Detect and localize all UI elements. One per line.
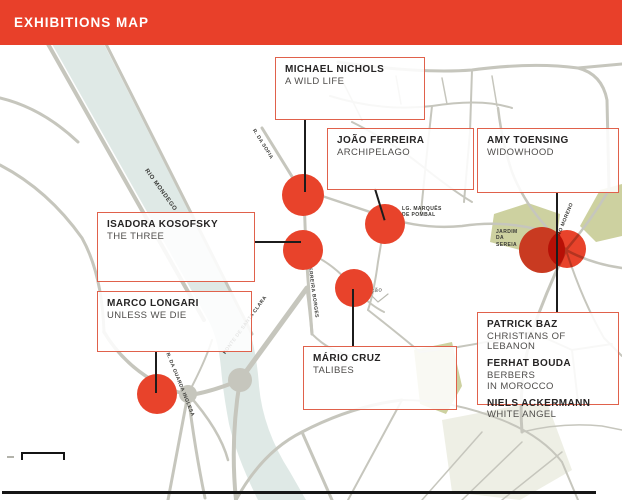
exhibition-label-isadora-kosofsky: ISADORA KOSOFSKY THE THREE [97,212,255,282]
map-marker-marco-longari [137,374,177,414]
map-marker-joao-ferreira [365,204,405,244]
scale-tick-left [21,452,23,460]
exhibition-label-marco-longari: MARCO LONGARI UNLESS WE DIE [97,291,252,352]
exhibition-label-right-group: PATRICK BAZ CHRISTIANS OF LEBANON FERHAT… [477,312,619,405]
exhibition-title: BERBERS IN MOROCCO [487,371,609,393]
exhibition-title: CHRISTIANS OF LEBANON [487,332,609,354]
exhibition-title: WIDOWHOOD [487,148,609,159]
page-title: EXHIBITIONS MAP [14,15,149,30]
exhibition-label-michael-nichols: MICHAEL NICHOLS A WILD LIFE [275,57,425,120]
header-bar: EXHIBITIONS MAP [0,0,622,45]
exhibition-label-mario-cruz: MÁRIO CRUZ TALIBES [303,346,457,410]
artist-name: FERHAT BOUDA [487,358,609,370]
artist-name: MARCO LONGARI [107,298,242,310]
artist-name: PATRICK BAZ [487,319,609,331]
scale-dash [7,456,14,458]
scale-tick-right [63,452,65,460]
leader-line-mario-cruz [352,289,354,347]
exhibition-entry-niels-ackermann: NIELS ACKERMANN WHITE ANGEL [487,398,609,421]
map-marker-mario-cruz [335,269,373,307]
artist-name: AMY TOENSING [487,135,609,147]
artist-name: MICHAEL NICHOLS [285,64,415,76]
leader-line-isadora-kosofsky [254,241,301,243]
exhibition-title: A WILD LIFE [285,77,415,88]
exhibition-title: THE THREE [107,232,245,243]
exhibition-title: WHITE ANGEL [487,410,609,421]
leader-line-right-group [556,192,558,312]
exhibition-title: TALIBES [313,366,447,377]
leader-line-michael-nichols [304,120,306,192]
artist-name: JOÃO FERREIRA [337,135,464,147]
artist-name: MÁRIO CRUZ [313,353,447,365]
artist-name: ISADORA KOSOFSKY [107,219,245,231]
exhibitions-map-page: EXHIBITIONS MAP [0,0,622,500]
map-label-lg-marques-de-pombal: LG. MARQUÊS DE POMBAL [402,206,442,219]
exhibition-label-amy-toensing: AMY TOENSING WIDOWHOOD [477,128,619,193]
exhibition-title: UNLESS WE DIE [107,311,242,322]
exhibition-entry-patrick-baz: PATRICK BAZ CHRISTIANS OF LEBANON [487,319,609,353]
map-marker-isadora-kosofsky [283,230,323,270]
leader-line-marco-longari [155,351,157,393]
bottom-rule [2,491,596,494]
map-label-jardim-da-sereia: JARDIM DA SEREIA [496,229,518,248]
exhibition-entry-ferhat-bouda: FERHAT BOUDA BERBERS IN MOROCCO [487,358,609,392]
artist-name: NIELS ACKERMANN [487,398,609,410]
map-marker-praca-republica-group [548,230,586,268]
scale-line [21,452,65,454]
map-marker-michael-nichols [282,174,324,216]
exhibition-label-joao-ferreira: JOÃO FERREIRA ARCHIPELAGO [327,128,474,190]
map-scale-bar [7,450,67,460]
exhibition-title: ARCHIPELAGO [337,148,464,159]
